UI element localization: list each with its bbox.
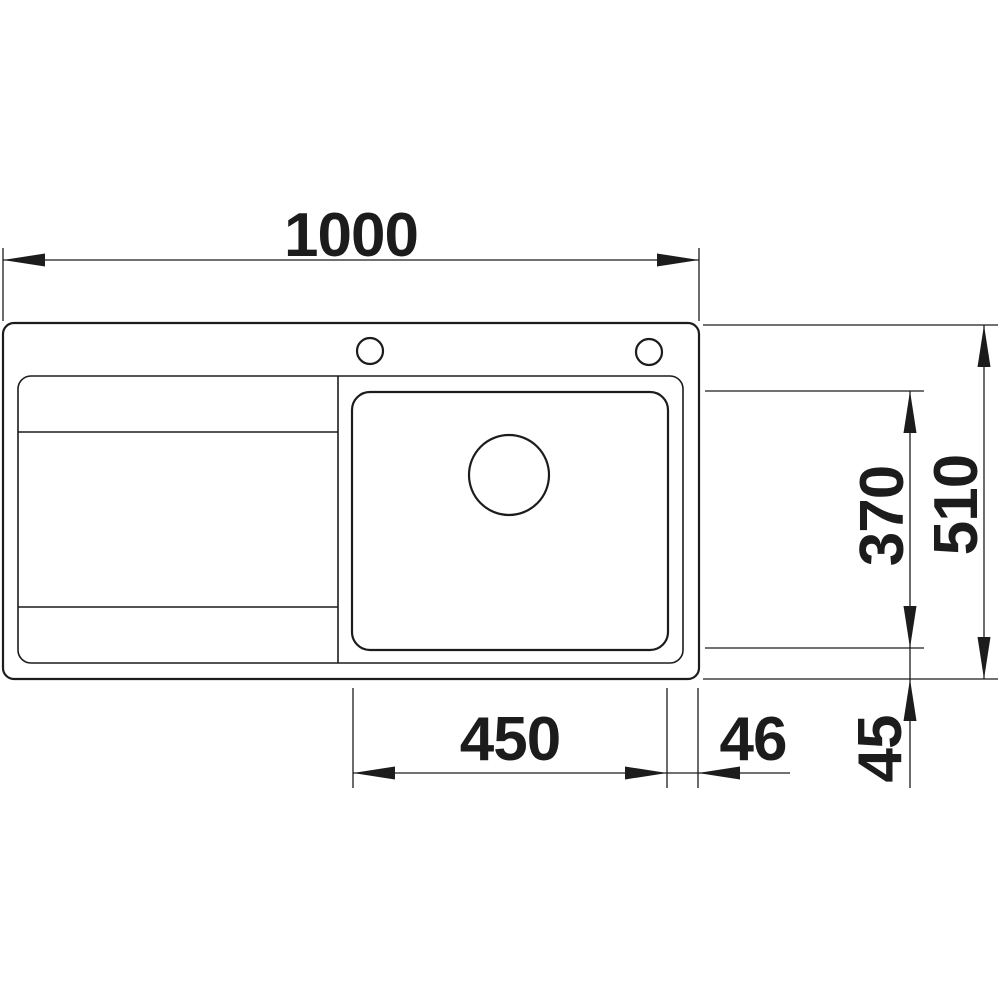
- arrow-left-icon: [353, 767, 395, 780]
- arrow-down-icon: [978, 637, 991, 679]
- dim-bowl-width: 450: [353, 688, 667, 788]
- dim-bowl-right-offset-label: 46: [720, 705, 787, 774]
- technical-drawing-canvas: 1000 510 370: [0, 0, 1000, 1000]
- arrow-left-icon: [3, 254, 45, 267]
- arrow-down-icon: [904, 606, 917, 648]
- dim-bowl-width-label: 450: [460, 705, 560, 774]
- arrow-up-icon: [904, 391, 917, 433]
- rim-inset-outline: [18, 376, 683, 663]
- tap-hole-right: [636, 339, 662, 365]
- dim-bowl-right-offset: 46: [667, 688, 790, 788]
- bowl-outline: [352, 392, 668, 650]
- drawing-root: 1000 510 370: [3, 201, 998, 788]
- drain-hole-circle: [469, 435, 549, 515]
- arrow-right-icon: [625, 767, 667, 780]
- dim-bowl-depth-label: 370: [848, 466, 917, 566]
- dim-overall-depth-label: 510: [922, 455, 991, 555]
- dim-bowl-bottom-offset: 45: [846, 648, 917, 788]
- arrow-up-icon: [978, 325, 991, 367]
- dim-overall-width: 1000: [3, 201, 699, 321]
- sink-dimension-drawing: 1000 510 370: [0, 0, 1000, 1000]
- sink-body: [3, 323, 699, 679]
- dim-bowl-depth: 370: [705, 391, 924, 648]
- arrow-up-icon: [904, 679, 917, 721]
- dim-bowl-bottom-offset-label: 45: [846, 716, 915, 783]
- tap-hole-left: [357, 338, 383, 364]
- arrow-right-icon: [657, 254, 699, 267]
- dim-overall-width-label: 1000: [284, 201, 418, 270]
